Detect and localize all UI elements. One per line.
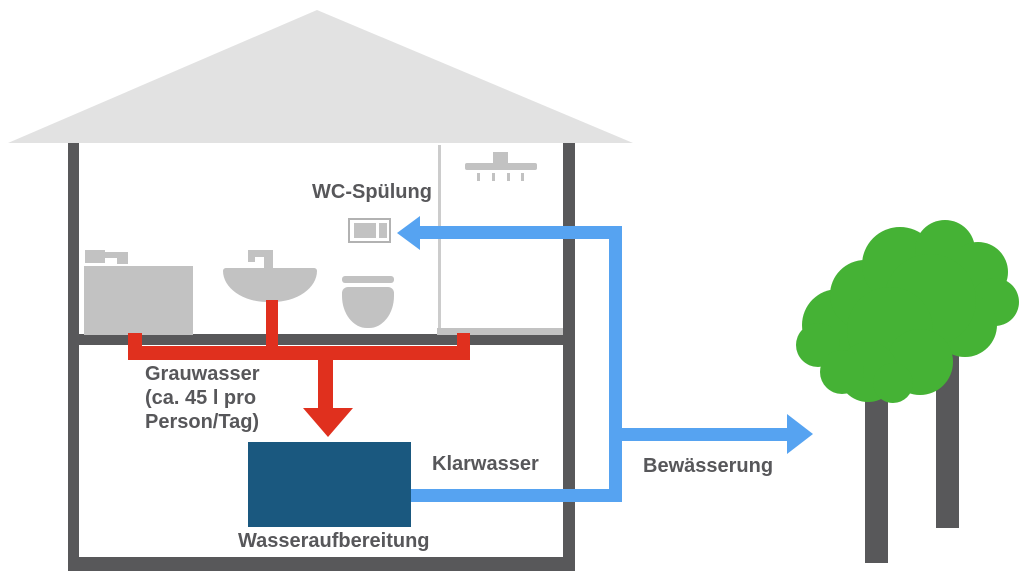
irrigation-branch-pipe [622,428,787,441]
shower-drop-icon [507,173,510,181]
clearwater-pipe-to-wc [420,226,622,239]
greywater-riser-washbasin [266,300,278,347]
water-tank-icon [248,442,411,527]
right-wall [563,143,575,571]
shower-drop-icon [492,173,495,181]
bathtub-icon [84,266,193,335]
tree-icon [790,212,1022,407]
shower-drop-icon [521,173,524,181]
greywater-arrow-icon [303,408,353,437]
washbasin-faucet-icon [264,250,273,268]
toilet-icon [342,276,394,283]
left-wall [68,143,79,571]
shower-tray [437,328,563,335]
bottom-wall [68,557,575,571]
greywater-down-pipe [318,358,333,410]
clearwater-riser-pipe [609,226,622,502]
washbasin-faucet-icon [248,256,255,262]
bathtub-faucet-icon [85,250,105,263]
greywater-label: Grauwasser (ca. 45 l pro Person/Tag) [145,362,260,434]
irrigation-label: Bewässerung [643,454,773,478]
diagram-canvas: WC-Spülung Grauwasser (ca. 45 l pro Pers… [0,0,1024,582]
washbasin-icon [223,268,317,302]
shower-drop-icon [477,173,480,181]
greywater-riser-shower [457,333,470,347]
water-treatment-label: Wasseraufbereitung [238,529,430,553]
wc-flush-label: WC-Spülung [312,180,432,204]
wc-flush-plate-icon [348,218,391,243]
middle-floor [79,334,563,345]
greywater-collector-pipe [128,346,470,360]
toilet-icon [342,287,394,328]
wc-flush-button-small [379,223,387,238]
greywater-riser-bathtub [128,333,142,347]
clearwater-pipe-from-tank [411,489,622,502]
tree-trunk-front [865,395,888,563]
clearwater-label: Klarwasser [432,452,539,476]
shower-partition [438,145,441,334]
wc-arrow-icon [397,216,420,250]
shower-head-icon [465,163,537,170]
bathtub-faucet-icon [117,257,128,264]
irrigation-arrow-icon [787,414,813,454]
wc-flush-button-large [354,223,376,238]
roof-icon [8,10,633,143]
